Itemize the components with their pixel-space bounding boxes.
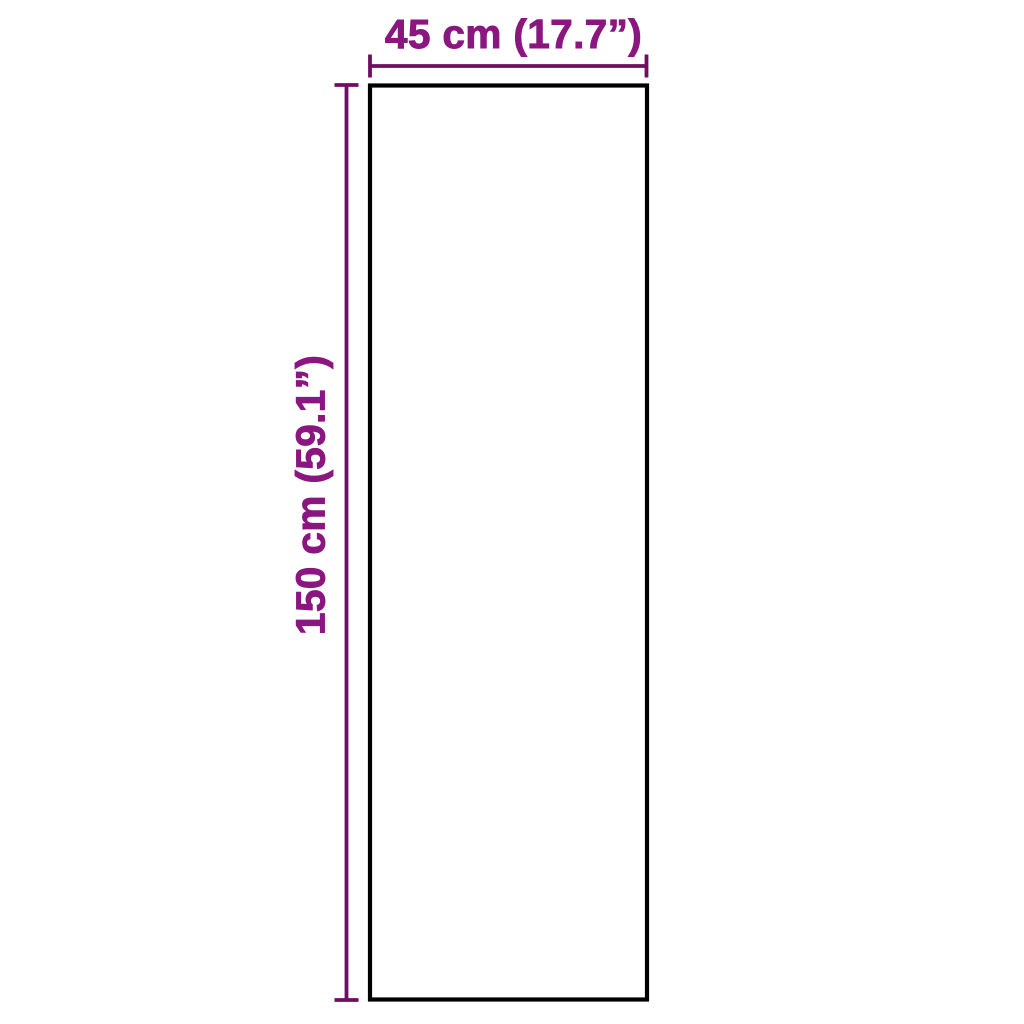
svg-text:45 cm (17.7”): 45 cm (17.7”) [385,11,642,57]
svg-text:150 cm (59.1”): 150 cm (59.1”) [288,355,334,635]
